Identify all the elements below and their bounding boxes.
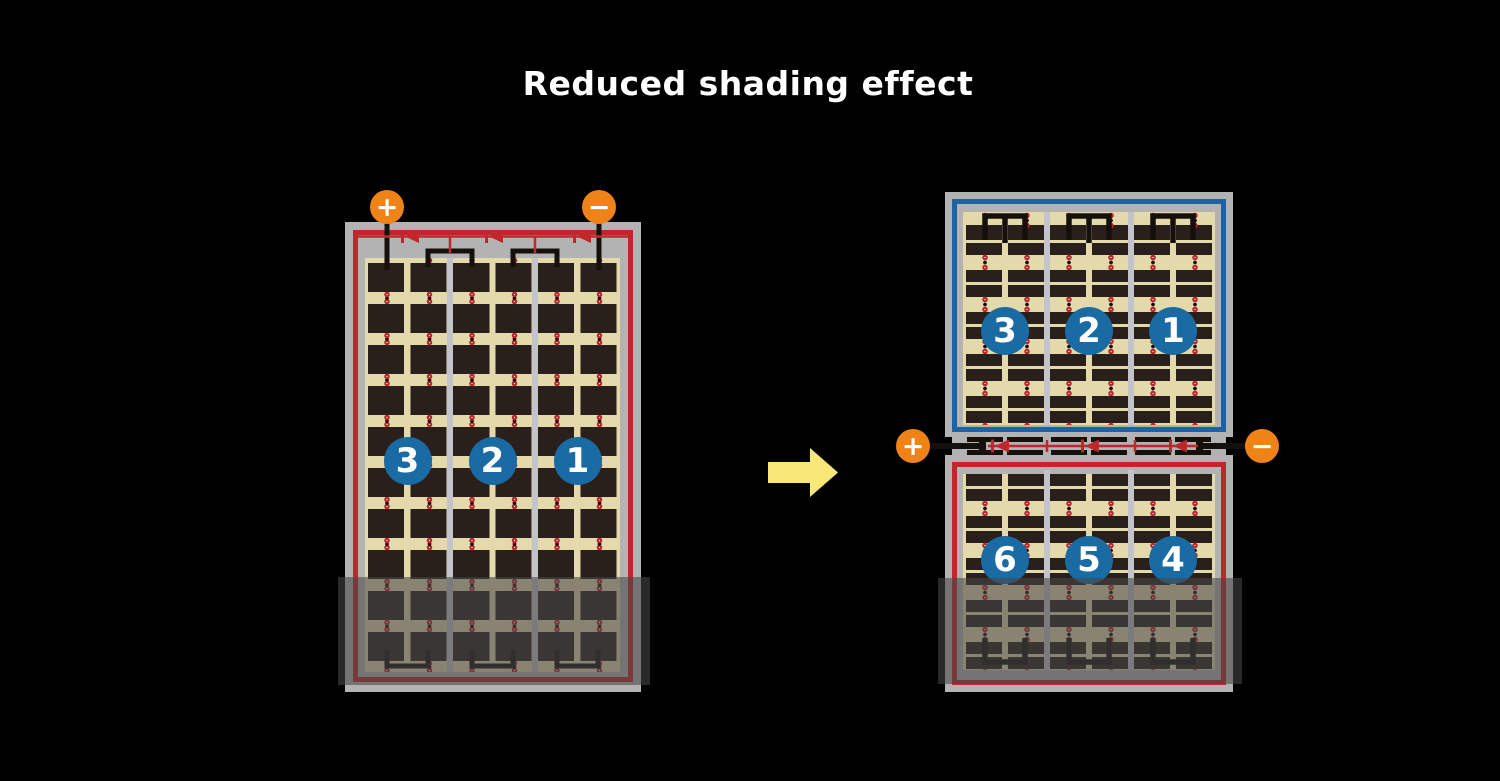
busbar-segment bbox=[1007, 437, 1043, 442]
string-number-badge: 3 bbox=[384, 437, 432, 485]
busbar-segment bbox=[967, 437, 1003, 442]
string-divider bbox=[1044, 212, 1050, 425]
positive-terminal: + bbox=[896, 429, 930, 463]
string-number-badge: 5 bbox=[1065, 536, 1113, 584]
busbar-segment bbox=[1135, 437, 1171, 442]
string-number-badge: 2 bbox=[1065, 307, 1113, 355]
busbar-segment bbox=[1175, 437, 1211, 442]
string-divider bbox=[1128, 212, 1134, 425]
circuit-linework bbox=[0, 0, 1500, 781]
string-number-badge: 2 bbox=[469, 437, 517, 485]
negative-terminal: − bbox=[1245, 429, 1279, 463]
positive-terminal: + bbox=[370, 190, 404, 224]
diagram-canvas: Reduced shading effect bbox=[0, 0, 1500, 781]
shading-overlay bbox=[338, 577, 650, 685]
negative-terminal: − bbox=[582, 190, 616, 224]
diagram-title: Reduced shading effect bbox=[0, 64, 1496, 103]
string-number-badge: 1 bbox=[554, 437, 602, 485]
string-number-badge: 1 bbox=[1149, 307, 1197, 355]
shading-overlay bbox=[938, 578, 1242, 684]
string-number-badge: 4 bbox=[1149, 536, 1197, 584]
busbar-segment bbox=[1091, 437, 1127, 442]
string-number-badge: 6 bbox=[981, 536, 1029, 584]
transform-arrow-icon bbox=[768, 448, 838, 497]
string-number-badge: 3 bbox=[981, 307, 1029, 355]
busbar-segment bbox=[1051, 437, 1087, 442]
